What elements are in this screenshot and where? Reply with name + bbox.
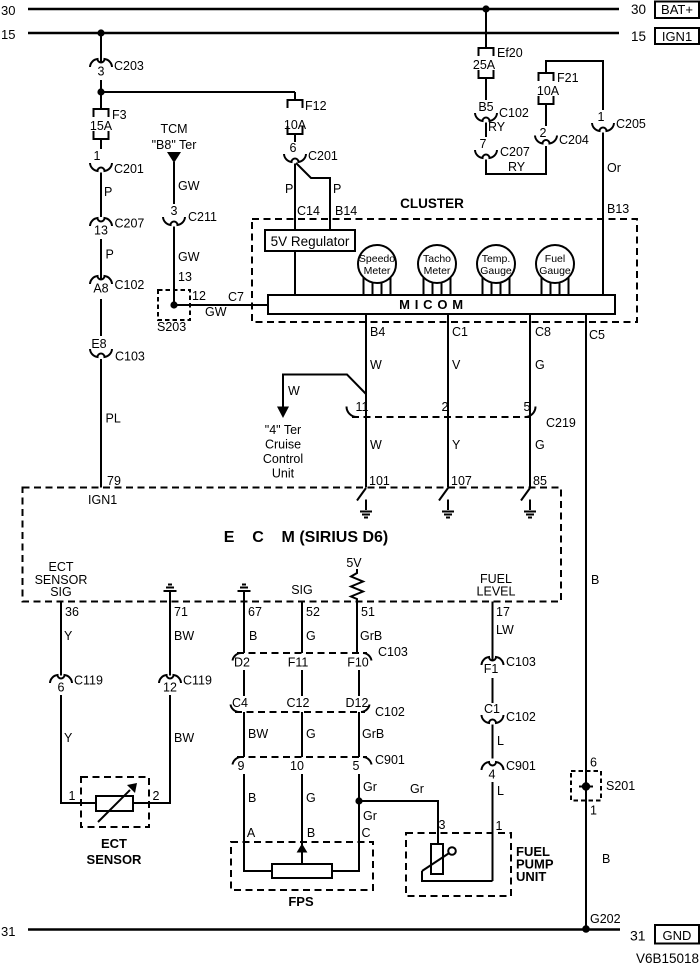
svg-text:MICOM: MICOM	[399, 297, 468, 312]
svg-text:RY: RY	[508, 160, 526, 174]
svg-text:C103: C103	[378, 645, 408, 659]
svg-text:B: B	[248, 791, 256, 805]
svg-text:GrB: GrB	[362, 727, 384, 741]
svg-text:G: G	[306, 727, 316, 741]
svg-text:GW: GW	[178, 179, 200, 193]
svg-text:B13: B13	[607, 202, 629, 216]
svg-text:85: 85	[533, 474, 547, 488]
svg-text:10A: 10A	[284, 118, 307, 132]
svg-text:C207: C207	[500, 145, 530, 159]
svg-text:71: 71	[174, 605, 188, 619]
svg-text:B14: B14	[335, 204, 357, 218]
svg-text:F1: F1	[484, 662, 499, 676]
svg-text:3: 3	[171, 204, 178, 218]
svg-text:C119: C119	[74, 674, 103, 688]
svg-text:C201: C201	[114, 162, 144, 176]
svg-text:BW: BW	[174, 731, 194, 745]
svg-text:GND: GND	[663, 928, 692, 943]
svg-text:BW: BW	[248, 727, 268, 741]
svg-text:1: 1	[590, 804, 597, 818]
svg-text:Fuel: Fuel	[545, 253, 565, 265]
svg-text:C211: C211	[188, 210, 217, 224]
svg-text:B: B	[591, 573, 599, 587]
svg-text:SIG: SIG	[50, 585, 72, 599]
svg-text:CLUSTER: CLUSTER	[400, 196, 464, 211]
svg-text:C901: C901	[506, 759, 536, 773]
svg-text:1: 1	[69, 789, 76, 803]
svg-text:C14: C14	[297, 204, 320, 218]
svg-text:"4" Ter: "4" Ter	[265, 423, 301, 437]
svg-text:6: 6	[58, 681, 65, 695]
svg-text:Temp.: Temp.	[482, 253, 511, 265]
svg-text:2: 2	[442, 400, 449, 414]
svg-text:F3: F3	[112, 108, 127, 122]
svg-text:F12: F12	[305, 99, 327, 113]
svg-text:B: B	[602, 852, 610, 866]
svg-text:PL: PL	[106, 412, 121, 426]
svg-text:C102: C102	[499, 106, 529, 120]
svg-text:C119: C119	[183, 674, 212, 688]
svg-text:W: W	[370, 438, 382, 452]
svg-text:5: 5	[524, 400, 531, 414]
svg-text:TCM: TCM	[160, 122, 187, 136]
svg-text:LEVEL: LEVEL	[477, 585, 516, 599]
svg-text:Gr: Gr	[410, 782, 424, 796]
svg-text:C219: C219	[546, 416, 576, 430]
svg-text:3: 3	[98, 65, 105, 79]
svg-text:Or: Or	[607, 161, 621, 175]
svg-text:5V Regulator: 5V Regulator	[271, 234, 350, 249]
svg-text:Speedo: Speedo	[359, 253, 395, 265]
svg-text:51: 51	[361, 605, 375, 619]
svg-text:Y: Y	[64, 731, 73, 745]
svg-text:2: 2	[540, 126, 547, 140]
svg-text:SIG: SIG	[291, 583, 313, 597]
svg-text:9: 9	[238, 759, 245, 773]
svg-text:6: 6	[290, 141, 297, 155]
svg-text:15A: 15A	[90, 119, 113, 133]
svg-text:13: 13	[178, 270, 192, 284]
svg-text:10A: 10A	[537, 84, 560, 98]
svg-text:G: G	[535, 358, 545, 372]
svg-text:107: 107	[451, 474, 472, 488]
svg-text:B: B	[249, 629, 257, 643]
svg-text:G: G	[535, 438, 545, 452]
svg-text:L: L	[497, 784, 504, 798]
svg-text:3: 3	[439, 818, 446, 832]
svg-text:G202: G202	[590, 912, 621, 926]
svg-text:Unit: Unit	[272, 467, 295, 481]
svg-text:31: 31	[630, 928, 646, 944]
svg-text:C12: C12	[287, 696, 310, 710]
svg-text:C103: C103	[115, 350, 145, 364]
svg-text:12: 12	[192, 289, 206, 303]
svg-text:V6B15018: V6B15018	[636, 951, 699, 966]
svg-text:C204: C204	[559, 133, 589, 147]
svg-text:S201: S201	[606, 779, 635, 793]
svg-text:C7: C7	[228, 290, 244, 304]
svg-text:6: 6	[590, 756, 597, 770]
svg-text:7: 7	[480, 137, 487, 151]
svg-text:101: 101	[369, 474, 390, 488]
svg-text:P: P	[285, 182, 293, 196]
svg-text:1: 1	[94, 149, 101, 163]
svg-text:BAT+: BAT+	[661, 2, 693, 17]
svg-text:C1: C1	[452, 325, 468, 339]
svg-text:17: 17	[496, 605, 510, 619]
svg-text:52: 52	[306, 605, 320, 619]
svg-text:E8: E8	[91, 337, 106, 351]
svg-text:Gauge: Gauge	[480, 265, 512, 277]
svg-text:V: V	[452, 358, 461, 372]
svg-text:SENSOR: SENSOR	[87, 852, 143, 867]
svg-text:C5: C5	[589, 328, 605, 342]
svg-text:1: 1	[598, 110, 605, 124]
svg-text:Meter: Meter	[424, 265, 451, 277]
svg-text:D12: D12	[346, 696, 369, 710]
svg-text:G: G	[306, 629, 316, 643]
svg-text:W: W	[288, 384, 300, 398]
svg-text:1: 1	[496, 819, 503, 833]
svg-text:IGN1: IGN1	[88, 493, 117, 507]
svg-text:GrB: GrB	[360, 629, 382, 643]
svg-text:UNIT: UNIT	[516, 869, 546, 884]
svg-text:Gr: Gr	[363, 780, 377, 794]
svg-text:Control: Control	[263, 452, 303, 466]
svg-text:B5: B5	[478, 100, 493, 114]
svg-text:79: 79	[107, 474, 121, 488]
svg-text:GW: GW	[205, 305, 227, 319]
svg-text:C1: C1	[484, 702, 500, 716]
svg-text:GW: GW	[178, 250, 200, 264]
svg-text:Meter: Meter	[364, 265, 391, 277]
svg-text:A8: A8	[93, 282, 108, 296]
svg-text:2: 2	[153, 789, 160, 803]
svg-text:15: 15	[1, 27, 15, 42]
svg-text:Y: Y	[64, 629, 73, 643]
svg-text:P: P	[333, 182, 341, 196]
svg-text:36: 36	[65, 605, 79, 619]
svg-text:C102: C102	[115, 278, 145, 292]
svg-text:LW: LW	[496, 623, 514, 637]
svg-text:"B8" Ter: "B8" Ter	[152, 138, 197, 152]
svg-text:ECT: ECT	[101, 836, 127, 851]
svg-text:C103: C103	[506, 655, 536, 669]
svg-text:C4: C4	[232, 696, 248, 710]
svg-text:Ef20: Ef20	[497, 46, 523, 60]
svg-text:L: L	[497, 734, 504, 748]
svg-text:5: 5	[353, 759, 360, 773]
svg-text:C207: C207	[115, 217, 145, 231]
svg-text:P: P	[106, 248, 114, 262]
svg-text:F10: F10	[347, 656, 369, 670]
svg-text:13: 13	[94, 224, 108, 238]
svg-text:30: 30	[631, 2, 646, 17]
svg-text:67: 67	[248, 605, 262, 619]
svg-text:B4: B4	[370, 325, 385, 339]
svg-text:Tacho: Tacho	[423, 253, 451, 265]
svg-text:Y: Y	[452, 438, 461, 452]
svg-text:11: 11	[356, 400, 369, 414]
svg-text:15: 15	[631, 29, 646, 44]
svg-text:C102: C102	[375, 705, 405, 719]
svg-text:C201: C201	[308, 149, 338, 163]
svg-text:Gr: Gr	[363, 809, 377, 823]
svg-text:10: 10	[290, 759, 304, 773]
svg-text:A: A	[247, 826, 256, 840]
svg-text:IGN1: IGN1	[662, 29, 692, 44]
svg-text:C205: C205	[616, 117, 646, 131]
svg-text:25A: 25A	[473, 58, 496, 72]
svg-text:C203: C203	[114, 59, 144, 73]
svg-text:C102: C102	[506, 710, 536, 724]
svg-text:C8: C8	[535, 325, 551, 339]
svg-text:C: C	[361, 826, 370, 840]
svg-text:B: B	[307, 826, 315, 840]
svg-text:4: 4	[489, 768, 496, 782]
svg-text:D2: D2	[234, 656, 250, 670]
svg-text:Cruise: Cruise	[265, 438, 301, 452]
svg-text:RY: RY	[488, 120, 506, 134]
svg-text:5V: 5V	[346, 556, 362, 570]
svg-text:C901: C901	[375, 753, 405, 767]
svg-text:F21: F21	[557, 71, 579, 85]
svg-text:FPS: FPS	[288, 894, 314, 909]
svg-text:W: W	[370, 358, 382, 372]
svg-text:E C M (SIRIUS D6): E C M (SIRIUS D6)	[224, 529, 388, 546]
svg-text:31: 31	[1, 924, 15, 939]
svg-text:30: 30	[1, 3, 15, 18]
svg-text:F11: F11	[288, 656, 309, 670]
svg-text:P: P	[104, 185, 112, 199]
svg-text:Gauge: Gauge	[539, 265, 571, 277]
svg-text:S203: S203	[157, 320, 186, 334]
svg-text:BW: BW	[174, 629, 194, 643]
svg-text:12: 12	[163, 681, 177, 695]
svg-text:G: G	[306, 791, 316, 805]
svg-text:ECT: ECT	[49, 560, 74, 574]
